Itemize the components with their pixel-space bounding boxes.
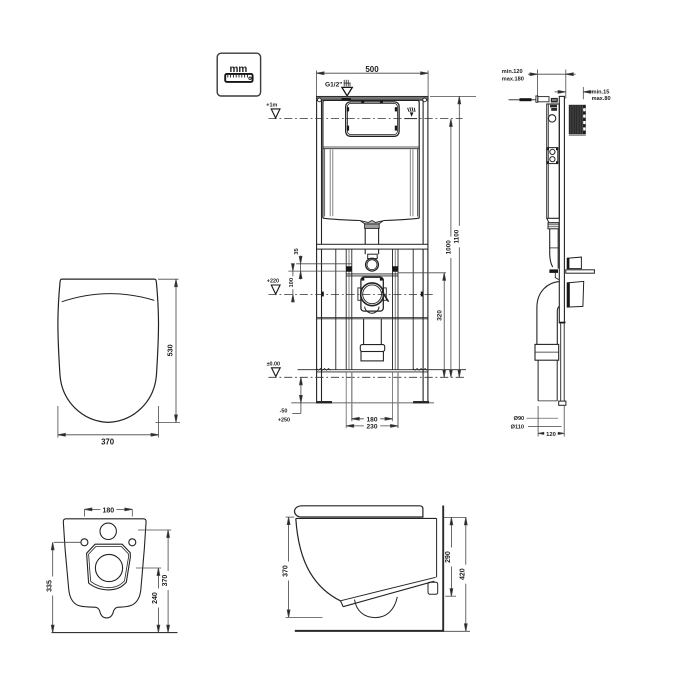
svg-text:max.80: max.80	[592, 96, 611, 102]
svg-text:370: 370	[282, 565, 289, 577]
svg-text:35: 35	[294, 248, 300, 255]
svg-text:max.180: max.180	[502, 77, 524, 83]
svg-text:180: 180	[366, 416, 377, 423]
svg-text:Ø110: Ø110	[511, 424, 524, 430]
svg-text:335: 335	[47, 580, 54, 592]
svg-text:240: 240	[152, 592, 159, 604]
svg-text:530: 530	[166, 344, 175, 356]
svg-text:1100: 1100	[454, 229, 461, 243]
svg-text:100: 100	[289, 278, 295, 288]
svg-text:290: 290	[445, 551, 452, 563]
svg-text:180: 180	[102, 507, 114, 514]
svg-text:320: 320	[437, 310, 444, 321]
svg-text:+1m: +1m	[266, 102, 277, 108]
svg-text:370: 370	[162, 575, 169, 587]
svg-text:230: 230	[366, 424, 377, 431]
svg-text:+250: +250	[278, 418, 290, 424]
svg-text:-50: -50	[280, 408, 288, 414]
svg-text:±0.00: ±0.00	[267, 361, 280, 367]
svg-text:1000: 1000	[445, 240, 452, 255]
svg-text:370: 370	[101, 438, 115, 447]
svg-text:420: 420	[460, 568, 467, 580]
svg-text:min.120: min.120	[502, 69, 523, 75]
svg-text:G1/2": G1/2"	[325, 81, 342, 88]
svg-text:min.15: min.15	[592, 89, 610, 95]
svg-text:500: 500	[365, 65, 379, 74]
svg-text:+220: +220	[267, 279, 279, 285]
svg-text:120: 120	[546, 432, 556, 438]
svg-text:Ø90: Ø90	[514, 416, 525, 422]
